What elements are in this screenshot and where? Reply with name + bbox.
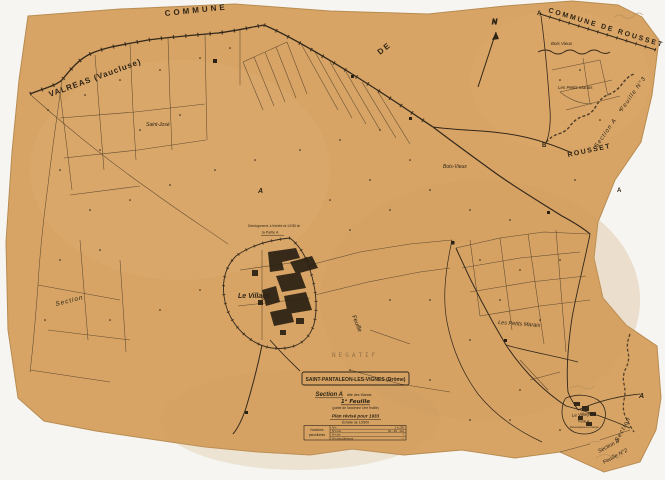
table-header-2: parcellaires bbox=[309, 433, 326, 437]
label-petits-marais-ne: Les Petits Marais bbox=[558, 85, 593, 90]
negatif-stamp: NEGATIF bbox=[332, 352, 378, 359]
cartouche-plan: Plan révisé pour 1933 bbox=[332, 414, 380, 419]
cartouche-title: SAINT-PANTALEON-LES-VIGNES (Drôme) bbox=[306, 377, 406, 383]
label-bois-vieux-ne: Bois Vieux bbox=[551, 41, 573, 46]
scanned-cadastral-map: N COMMUNE DE VALREAS (Vaucluse) COMMUNE … bbox=[0, 0, 665, 480]
cartouche-section: Section A bbox=[316, 392, 343, 398]
cartouche-feuille: 1ᵉ Feuille bbox=[341, 399, 370, 405]
cartouche-echelle: Échelle de 1/2500 bbox=[342, 420, 369, 425]
marker-a-e: A bbox=[617, 188, 622, 194]
label-saint-jose: Saint-José bbox=[146, 122, 170, 128]
label-inset-note-2: la Partie A bbox=[262, 231, 279, 235]
table-row-3-label: N°s bis ultérieurs bbox=[332, 436, 354, 440]
label-inset-note-1: Développement, à l'échelle de 1/1250 de bbox=[248, 224, 300, 228]
marker-a-ne: A bbox=[537, 11, 542, 17]
marker-b: B bbox=[542, 143, 547, 149]
table-header-1: Nombres bbox=[311, 428, 324, 432]
label-le-village: Le Village bbox=[238, 293, 271, 300]
label-bois-vieux: Bois-Vieux bbox=[443, 164, 467, 170]
cartouche-feuille-note: (partie de l'ancienne 1ère feuille) bbox=[332, 406, 378, 410]
table-row-3-value: — bbox=[401, 436, 404, 440]
label-partie-a-se: Partie A bbox=[578, 420, 590, 424]
cartouche-section-suffix: dite des Marais bbox=[347, 393, 372, 397]
label-developpee: Développée en marge bbox=[570, 425, 599, 429]
marker-a-se: A bbox=[638, 393, 644, 400]
marker-a-nw: A bbox=[257, 188, 263, 195]
